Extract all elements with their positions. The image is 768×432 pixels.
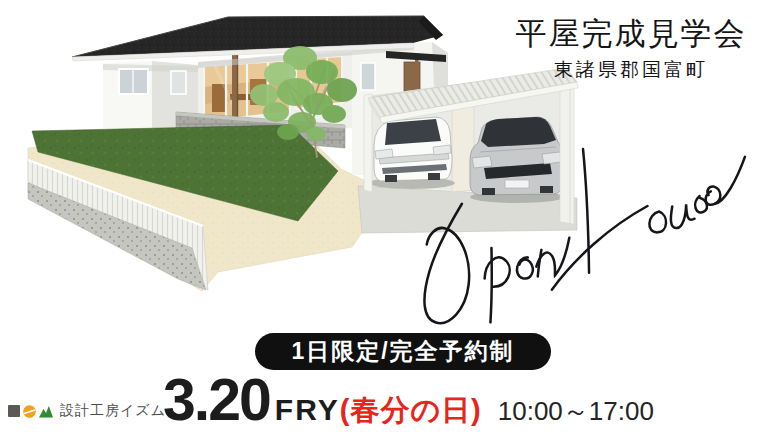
event-title: 平屋完成見学会 (500, 14, 762, 55)
wood-post (232, 55, 238, 124)
minivan (369, 117, 455, 189)
logo-mountain-icon (39, 405, 53, 418)
date-holiday: (春分の日) (340, 396, 482, 425)
limited-badge-label: 1日限定/完全予約制 (291, 336, 514, 367)
event-date: 3.20 FRY (春分の日) 10:00～17:00 (163, 371, 654, 430)
event-location: 東諸県郡国富町 (500, 57, 762, 83)
date-day: 3.20 (163, 371, 270, 430)
company-logo: 設計工房イズム (8, 402, 166, 420)
company-name: 設計工房イズム (60, 402, 166, 420)
flyer-canvas: Open House 平屋完成見学会 東諸県郡国富町 1日限定/完全予約制 3.… (0, 0, 768, 432)
date-time: 10:00～17:00 (498, 398, 654, 424)
sedan (470, 117, 564, 203)
logo-circle-icon (23, 405, 36, 418)
logo-square-icon (8, 405, 20, 417)
header-block: 平屋完成見学会 東諸県郡国富町 (500, 14, 762, 83)
window-right-wall (361, 63, 375, 90)
limited-badge: 1日限定/完全予約制 (255, 333, 551, 370)
date-weekday: FRY (275, 395, 340, 425)
